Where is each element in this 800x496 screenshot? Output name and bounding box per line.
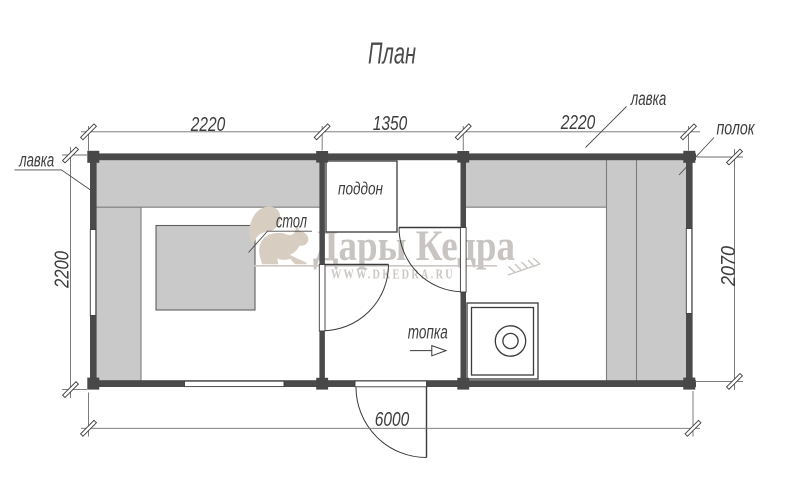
svg-text:2220: 2220 [560, 111, 596, 134]
svg-text:полок: полок [717, 118, 756, 140]
svg-text:стол: стол [276, 210, 307, 232]
svg-text:6000: 6000 [375, 408, 410, 431]
svg-text:План: План [368, 37, 416, 71]
svg-text:2070: 2070 [717, 245, 740, 286]
svg-text:топка: топка [408, 321, 448, 343]
svg-text:2200: 2200 [50, 251, 73, 289]
svg-text:WWW.DKEDRA.RU: WWW.DKEDRA.RU [331, 266, 455, 281]
svg-text:1350: 1350 [373, 112, 408, 135]
svg-text:2220: 2220 [190, 113, 226, 136]
svg-text:лавка: лавка [19, 150, 55, 172]
svg-text:лавка: лавка [630, 88, 666, 110]
svg-text:поддон: поддон [338, 179, 383, 199]
